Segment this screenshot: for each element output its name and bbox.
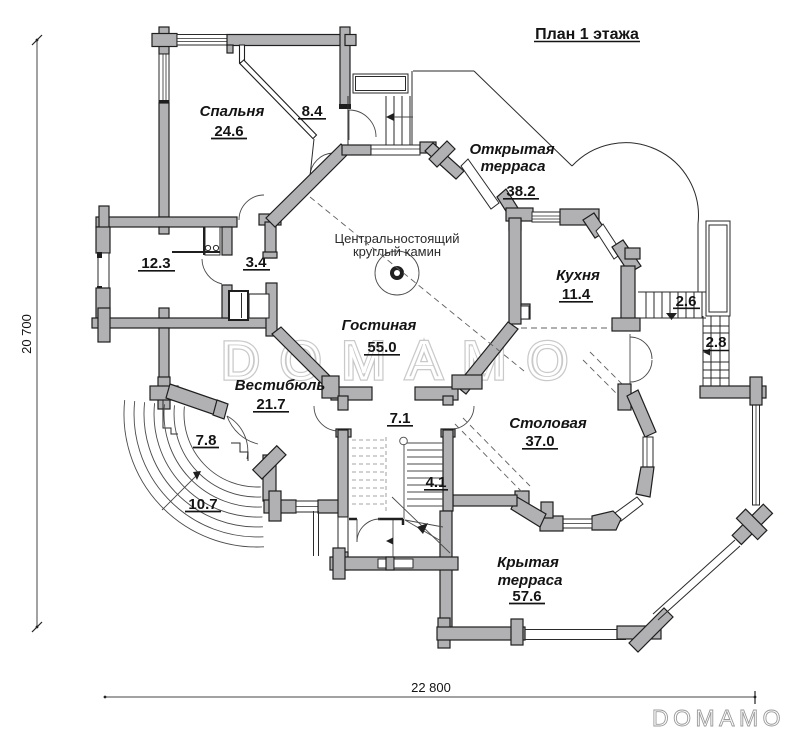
svg-text:37.0: 37.0 <box>525 433 554 450</box>
svg-text:терраса: терраса <box>498 572 563 589</box>
svg-text:Открытая: Открытая <box>469 141 554 158</box>
svg-text:7.8: 7.8 <box>196 432 217 449</box>
svg-text:22 800: 22 800 <box>411 680 451 695</box>
svg-text:терраса: терраса <box>481 158 546 175</box>
svg-text:План 1 этажа: План 1 этажа <box>535 26 639 43</box>
svg-text:Спальня: Спальня <box>200 103 265 120</box>
svg-text:8.4: 8.4 <box>302 103 324 120</box>
svg-text:Гостиная: Гостиная <box>342 317 417 334</box>
svg-text:Столовая: Столовая <box>509 415 587 432</box>
svg-text:2.6: 2.6 <box>676 293 697 310</box>
svg-text:57.6: 57.6 <box>512 588 541 605</box>
svg-text:11.4: 11.4 <box>562 286 591 303</box>
svg-text:7.1: 7.1 <box>390 410 411 427</box>
svg-text:10.7: 10.7 <box>188 496 217 513</box>
svg-text:Кухня: Кухня <box>556 267 600 284</box>
svg-text:2.8: 2.8 <box>706 334 727 351</box>
svg-text:Крытая: Крытая <box>497 554 559 571</box>
svg-text:4.1: 4.1 <box>426 474 447 491</box>
svg-text:20 700: 20 700 <box>19 314 34 354</box>
svg-text:DOMAMO: DOMAMO <box>652 705 785 731</box>
svg-text:21.7: 21.7 <box>256 396 285 413</box>
svg-text:38.2: 38.2 <box>506 183 535 200</box>
svg-text:12.3: 12.3 <box>141 255 170 272</box>
svg-text:55.0: 55.0 <box>367 339 396 356</box>
svg-text:Вестибюль: Вестибюль <box>235 377 326 394</box>
svg-text:круглый камин: круглый камин <box>353 244 441 259</box>
svg-text:24.6: 24.6 <box>214 123 243 140</box>
